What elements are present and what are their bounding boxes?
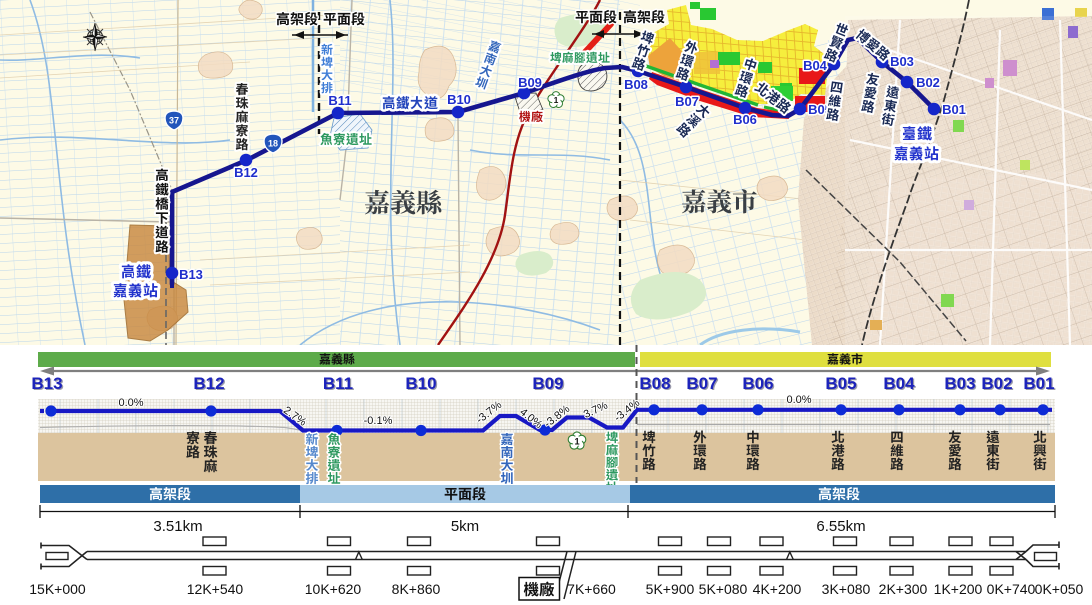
svg-text:B07: B07 — [686, 374, 717, 393]
svg-text:1: 1 — [554, 95, 559, 105]
svg-text:0K+740: 0K+740 — [987, 581, 1036, 597]
svg-text:B09: B09 — [518, 75, 542, 90]
svg-text:B04: B04 — [883, 374, 915, 393]
svg-text:B10: B10 — [447, 92, 471, 107]
svg-text:B11: B11 — [328, 93, 351, 108]
svg-text:B02: B02 — [916, 75, 940, 90]
svg-text:B01: B01 — [1023, 374, 1054, 393]
svg-text:B06: B06 — [733, 112, 757, 127]
svg-text:B06: B06 — [742, 374, 773, 393]
svg-text:15K+000: 15K+000 — [29, 581, 86, 597]
svg-text:4K+200: 4K+200 — [753, 581, 802, 597]
svg-text:3.51km: 3.51km — [153, 518, 202, 535]
svg-text:B13: B13 — [31, 374, 62, 393]
svg-text:37: 37 — [169, 116, 179, 126]
svg-text:2K+300: 2K+300 — [879, 581, 928, 597]
svg-text:B02: B02 — [981, 374, 1012, 393]
svg-text:B01: B01 — [942, 102, 966, 117]
svg-text:B12: B12 — [193, 374, 224, 393]
svg-text:0K+050: 0K+050 — [1035, 581, 1084, 597]
svg-text:7K+660: 7K+660 — [567, 581, 616, 597]
svg-text:B03: B03 — [944, 374, 975, 393]
svg-text:B04: B04 — [803, 58, 828, 73]
svg-text:12K+540: 12K+540 — [187, 581, 244, 597]
svg-text:0.0%: 0.0% — [118, 397, 143, 409]
svg-text:10K+620: 10K+620 — [305, 581, 362, 597]
svg-text:5K+900: 5K+900 — [646, 581, 695, 597]
svg-text:-0.1%: -0.1% — [364, 415, 393, 427]
svg-text:B05: B05 — [825, 374, 856, 393]
svg-text:B09: B09 — [532, 374, 563, 393]
svg-text:18: 18 — [268, 139, 278, 149]
svg-text:B12: B12 — [234, 165, 258, 180]
svg-text:B07: B07 — [675, 94, 699, 109]
svg-text:B08: B08 — [624, 77, 648, 92]
svg-text:3K+080: 3K+080 — [822, 581, 871, 597]
svg-text:5km: 5km — [451, 518, 479, 535]
svg-text:1: 1 — [574, 436, 579, 446]
svg-text:0.0%: 0.0% — [786, 394, 811, 406]
svg-text:B03: B03 — [890, 54, 914, 69]
svg-text:B08: B08 — [639, 374, 670, 393]
svg-text:B10: B10 — [405, 374, 436, 393]
svg-text:6.55km: 6.55km — [816, 518, 865, 535]
svg-text:8K+860: 8K+860 — [392, 581, 441, 597]
svg-text:B11: B11 — [323, 374, 353, 393]
svg-text:B13: B13 — [179, 267, 203, 282]
svg-text:1K+200: 1K+200 — [934, 581, 983, 597]
svg-text:5K+080: 5K+080 — [699, 581, 748, 597]
